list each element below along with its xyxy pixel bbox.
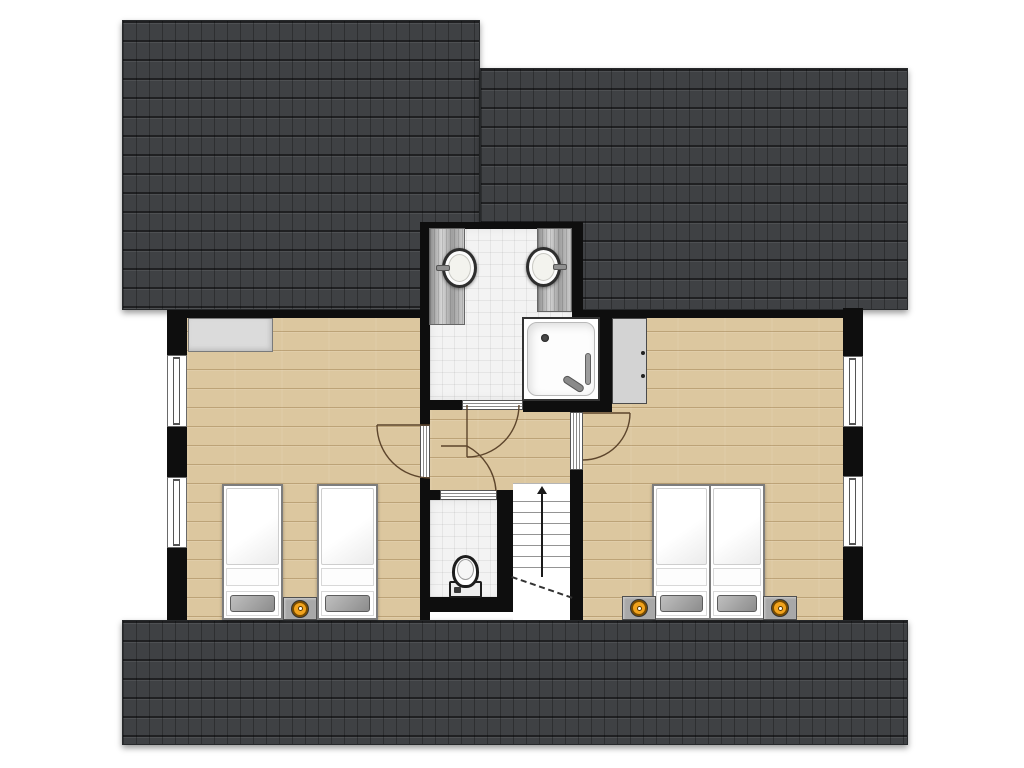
bed-double [652,484,765,620]
window-glazing [173,479,180,546]
sideboard [188,318,273,352]
pillow [325,595,370,612]
duvet [656,488,707,565]
nightstand-right-2 [763,596,797,620]
wardrobe [612,318,647,404]
toilet-seat [457,559,474,580]
duvet [321,488,374,565]
sink-basin [532,253,555,281]
door-frame-bedroom-right [570,412,583,470]
sheet-strip [226,568,279,586]
nightstand-right-1 [622,596,656,620]
mattress [654,486,709,618]
pillow-zone [656,591,707,616]
pillow [230,595,275,612]
lamp-center [778,606,783,611]
faucet-icon [436,265,450,271]
wc-north-wall [430,490,440,500]
top-wall-right [572,310,863,318]
mattress [319,486,376,618]
toilet [449,555,482,598]
pillow-zone [226,591,279,616]
bed-single-2 [317,484,378,620]
shower-rail [585,353,591,385]
mattress [224,486,281,618]
sheet-strip [713,568,762,586]
pillow [717,595,758,612]
window-glazing [173,357,180,425]
floorplan [0,0,1024,768]
drain-icon [541,334,549,342]
lamp-center [637,606,642,611]
sheet-strip [321,568,374,586]
nightstand-left [283,597,317,620]
duvet [713,488,762,565]
window-glazing [849,358,856,425]
pillow [660,595,703,612]
pillow-zone [713,591,762,616]
mattress [709,486,764,618]
window-left-1 [167,355,187,427]
window-right-1 [843,356,863,427]
lamp-center [298,606,303,611]
pillow-zone [321,591,374,616]
stair-cut-line [511,576,572,599]
window-left-2 [167,477,187,548]
door-frame-wc [440,490,497,500]
door-frame-bedroom-left [420,425,430,478]
bedroom-right-west-wall-upper [570,400,583,412]
bathroom-south-wall-east [523,400,612,412]
left-wall-mid [167,427,187,477]
bathroom-south-wall-west [420,400,462,410]
right-wall-mid [843,427,863,476]
sheet-strip [656,568,707,586]
bed-single-1 [222,484,283,620]
lamp-icon [772,600,788,616]
window-right-2 [843,476,863,547]
hallway-floor [430,400,570,490]
window-glazing [849,478,856,545]
wc-east-wall [497,490,513,602]
shower [522,317,600,401]
wc-south-wall [420,597,513,612]
duvet [226,488,279,565]
left-wall-lower [167,548,187,620]
lamp-icon [292,601,308,617]
sink-left [442,248,477,288]
faucet-icon [553,264,567,270]
shower-east-wall [600,313,612,412]
flush-button [454,587,461,593]
lamp-icon [631,600,647,616]
right-wall-upper [843,308,863,356]
staircase [513,483,570,620]
bathroom-east-wall [572,222,583,318]
right-wall-lower [843,547,863,620]
door-frame-bathroom [462,400,523,410]
top-wall-left [167,310,430,318]
up-arrow-icon [541,489,543,577]
left-wall-upper [167,310,187,355]
roof-bottom [122,620,908,745]
sink-basin [448,254,471,282]
sink-right [526,247,561,287]
